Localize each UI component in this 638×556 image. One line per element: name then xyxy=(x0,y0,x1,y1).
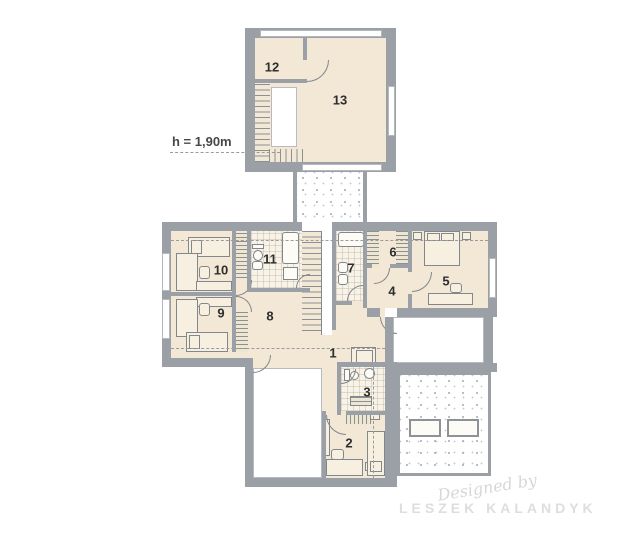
main-stairs-railing xyxy=(321,231,322,335)
annex-window-right xyxy=(388,86,395,136)
room5-desk xyxy=(428,293,473,305)
watermark-designer-name: LESZEK KALANDYK xyxy=(399,500,597,516)
room10-label: 10 xyxy=(214,263,228,278)
connector-terrace xyxy=(296,172,364,222)
room2-wall-right xyxy=(385,362,397,487)
room1-label: 1 xyxy=(329,346,336,361)
room11-toilet-bowl xyxy=(253,250,263,261)
dash-line-rooms2-3 xyxy=(373,367,374,478)
wall-room3-bottom-b xyxy=(346,411,397,415)
wall-room6-bottom-a xyxy=(367,264,372,268)
room11-washer xyxy=(283,267,298,280)
annex-stairs-turn xyxy=(269,149,307,162)
annex-stairwell-void xyxy=(271,87,297,147)
main-wall-top-left xyxy=(162,222,302,231)
dash-line-north xyxy=(171,240,488,241)
window-right-room5 xyxy=(489,258,496,298)
terrace-wall-top xyxy=(393,363,497,372)
main-wall-bottom xyxy=(245,478,397,487)
room2-pillow xyxy=(370,461,382,472)
room7-label: 7 xyxy=(347,261,354,276)
room11-toilet-tank xyxy=(252,244,264,249)
room9-pillow xyxy=(189,335,200,349)
wall-room3-top xyxy=(337,362,393,367)
center-wall-left xyxy=(245,367,253,487)
annex-wall-room12-13 xyxy=(303,38,307,60)
room11-sink xyxy=(252,261,263,270)
floor-plan: h = 1,90m xyxy=(0,0,638,556)
wardrobe-room6-left xyxy=(367,231,379,267)
room6-label: 6 xyxy=(389,245,396,260)
dash-line-south-left xyxy=(171,348,385,349)
annex-wall-left xyxy=(245,38,255,162)
wall-room3-left xyxy=(337,367,341,415)
room12-label: 12 xyxy=(265,60,279,75)
wall-stairwell-right xyxy=(332,231,336,330)
wall-room11-corridor xyxy=(247,288,310,292)
room3-label: 3 xyxy=(363,385,370,400)
room12-floor xyxy=(255,38,306,79)
wall-wardrobe-room11 xyxy=(247,231,251,292)
annex-wall-under-room12 xyxy=(255,79,307,83)
wall-room6-right xyxy=(408,231,412,272)
void-right-edge-wall xyxy=(484,317,493,363)
rooms45-wall-bottom-a xyxy=(367,308,380,317)
window-left-room10 xyxy=(162,253,170,291)
room11-bathtub xyxy=(282,232,299,264)
void-open-below-right xyxy=(393,317,484,363)
terrace-skylight-1 xyxy=(409,419,441,437)
room5-chair xyxy=(450,283,462,293)
wall-room7-right xyxy=(363,231,367,308)
annex-window-bottom xyxy=(302,164,382,171)
wall-room7-bottom xyxy=(336,301,352,305)
window-left-room9 xyxy=(162,299,170,339)
room11-label: 11 xyxy=(263,252,277,267)
height-annotation-dashline xyxy=(170,152,280,153)
room9-chair xyxy=(199,303,210,316)
room13-label: 13 xyxy=(333,93,347,108)
connector-wall-left xyxy=(293,172,297,222)
room8-label: 8 xyxy=(266,309,273,324)
leftwing-wall-bottom xyxy=(162,358,253,367)
room2-label: 2 xyxy=(345,436,352,451)
void-open-below-left xyxy=(253,368,322,478)
void-left-edge-wall xyxy=(385,317,393,362)
wardrobe-room6-right xyxy=(396,231,408,267)
wall-rooms-corridor xyxy=(232,231,236,352)
height-annotation-label: h = 1,90m xyxy=(172,134,232,149)
room9-label: 9 xyxy=(217,306,224,321)
main-wall-top-right xyxy=(332,222,497,231)
room10-dresser xyxy=(196,281,232,291)
room7-sink-2 xyxy=(338,274,348,285)
wall-room4-right xyxy=(408,294,412,308)
terrace-skylight-2 xyxy=(447,419,479,437)
wall-room2-left xyxy=(322,415,326,478)
room10-pillow xyxy=(191,240,202,254)
annex-window-top xyxy=(260,30,382,37)
room2-desk xyxy=(326,459,363,476)
annex-stairs-run xyxy=(255,84,270,162)
room5-label: 5 xyxy=(442,274,449,289)
room10-chair xyxy=(199,266,210,279)
room5-nightstand-2 xyxy=(462,232,471,240)
rooms45-wall-bottom-b xyxy=(397,308,497,317)
wall-room9-10 xyxy=(171,292,232,296)
connector-wall-right xyxy=(363,172,367,222)
main-stairwell-void xyxy=(321,231,332,335)
room10-desk xyxy=(176,253,198,291)
room5-nightstand-1 xyxy=(413,232,422,240)
room4-label: 4 xyxy=(388,284,395,299)
